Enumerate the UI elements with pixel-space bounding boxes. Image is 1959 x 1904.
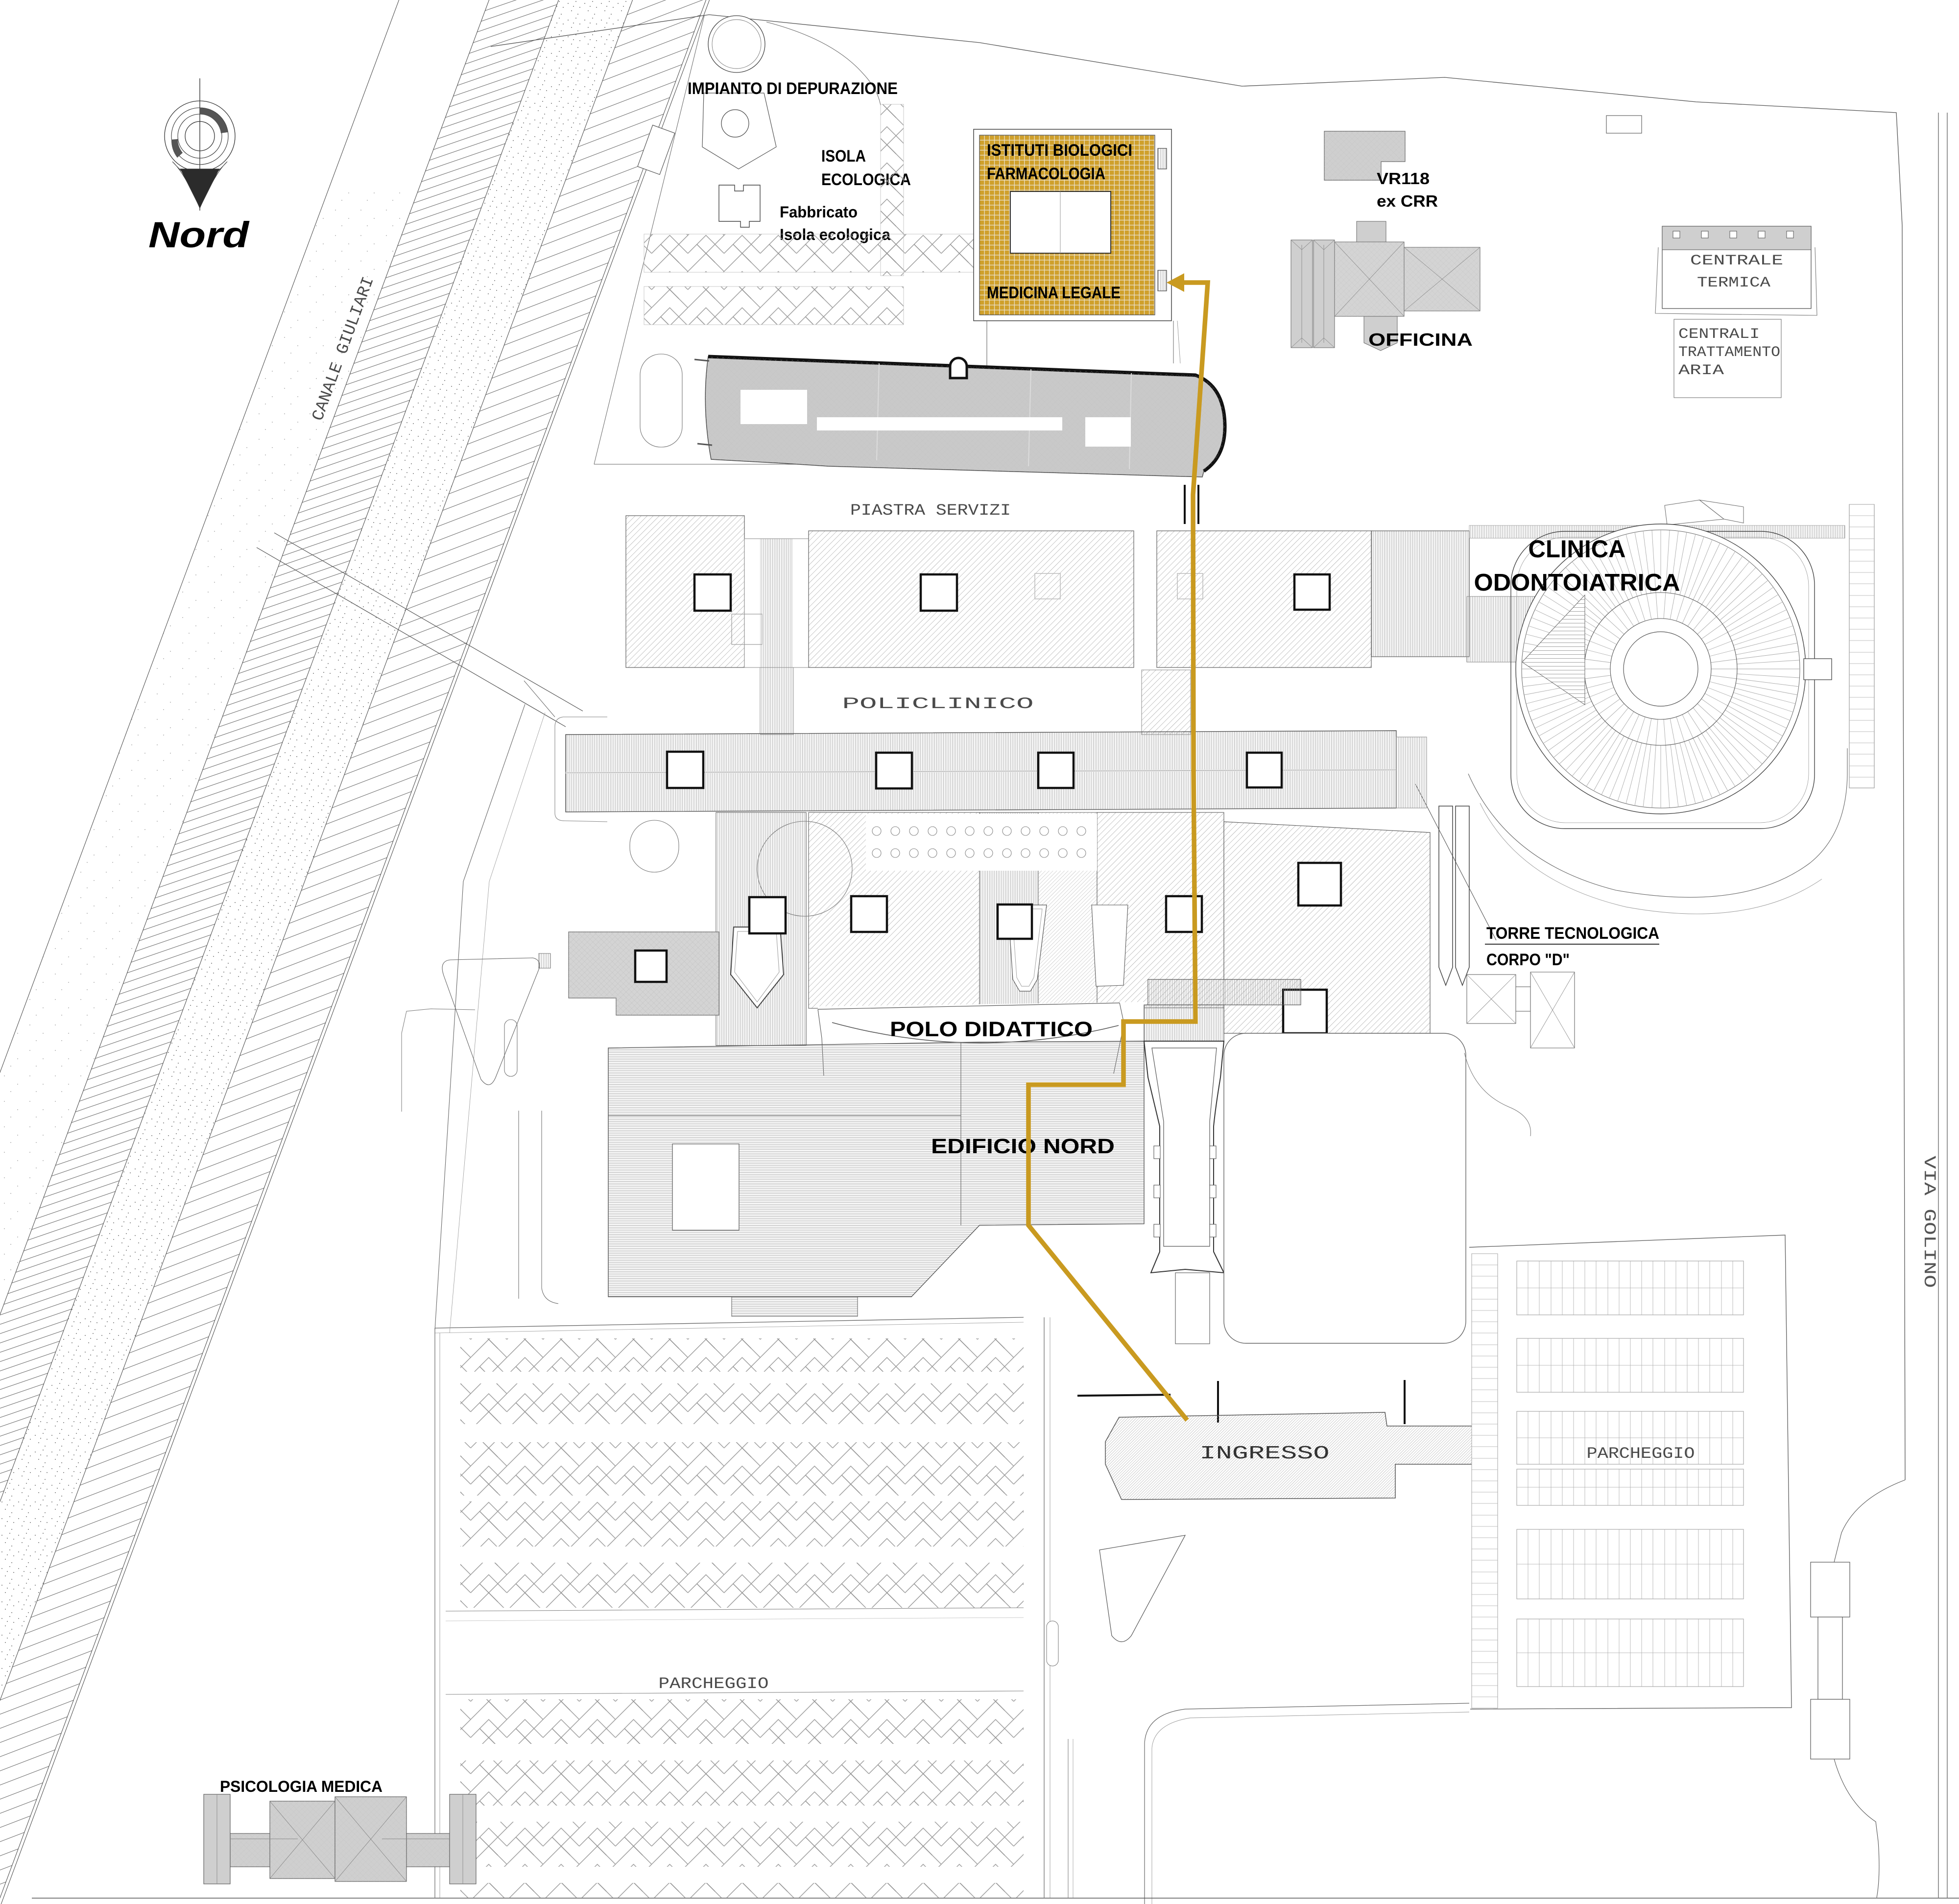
svg-text:VR118: VR118 xyxy=(1377,169,1430,188)
svg-text:POLO DIDATTICO: POLO DIDATTICO xyxy=(890,1018,1093,1041)
svg-text:ARIA: ARIA xyxy=(1678,362,1724,379)
svg-text:TERMICA: TERMICA xyxy=(1697,275,1770,291)
svg-text:IMPIANTO DI DEPURAZIONE: IMPIANTO DI DEPURAZIONE xyxy=(688,79,898,98)
svg-text:CENTRALE: CENTRALE xyxy=(1690,253,1783,269)
svg-text:ex CRR: ex CRR xyxy=(1377,192,1438,210)
svg-text:FARMACOLOGIA: FARMACOLOGIA xyxy=(987,165,1105,183)
svg-text:TRATTAMENTO: TRATTAMENTO xyxy=(1678,344,1780,361)
svg-text:PARCHEGGIO: PARCHEGGIO xyxy=(1587,1445,1695,1463)
svg-text:PARCHEGGIO: PARCHEGGIO xyxy=(659,1675,769,1693)
svg-text:POLICLINICO: POLICLINICO xyxy=(842,695,1034,713)
svg-text:PIASTRA SERVIZI: PIASTRA SERVIZI xyxy=(850,501,1011,520)
svg-text:INGRESSO: INGRESSO xyxy=(1200,1443,1330,1464)
svg-text:PSICOLOGIA MEDICA: PSICOLOGIA MEDICA xyxy=(220,1778,382,1795)
svg-text:CENTRALI: CENTRALI xyxy=(1678,326,1760,343)
svg-text:TORRE TECNOLOGICA: TORRE TECNOLOGICA xyxy=(1486,924,1659,943)
svg-text:ISOLA: ISOLA xyxy=(821,147,866,166)
svg-text:CLINICA: CLINICA xyxy=(1529,535,1626,563)
svg-text:Fabbricato: Fabbricato xyxy=(780,203,858,221)
svg-text:MEDICINA LEGALE: MEDICINA LEGALE xyxy=(987,284,1121,302)
svg-text:ISTITUTI BIOLOGICI: ISTITUTI BIOLOGICI xyxy=(987,141,1132,160)
svg-text:ODONTOIATRICA: ODONTOIATRICA xyxy=(1474,570,1680,596)
svg-text:CORPO "D": CORPO "D" xyxy=(1486,951,1570,969)
svg-text:Nord: Nord xyxy=(148,214,250,255)
svg-text:VIA GOLINO: VIA GOLINO xyxy=(1919,1156,1938,1288)
svg-text:EDIFICIO NORD: EDIFICIO NORD xyxy=(931,1135,1115,1158)
svg-text:OFFICINA: OFFICINA xyxy=(1368,330,1473,350)
